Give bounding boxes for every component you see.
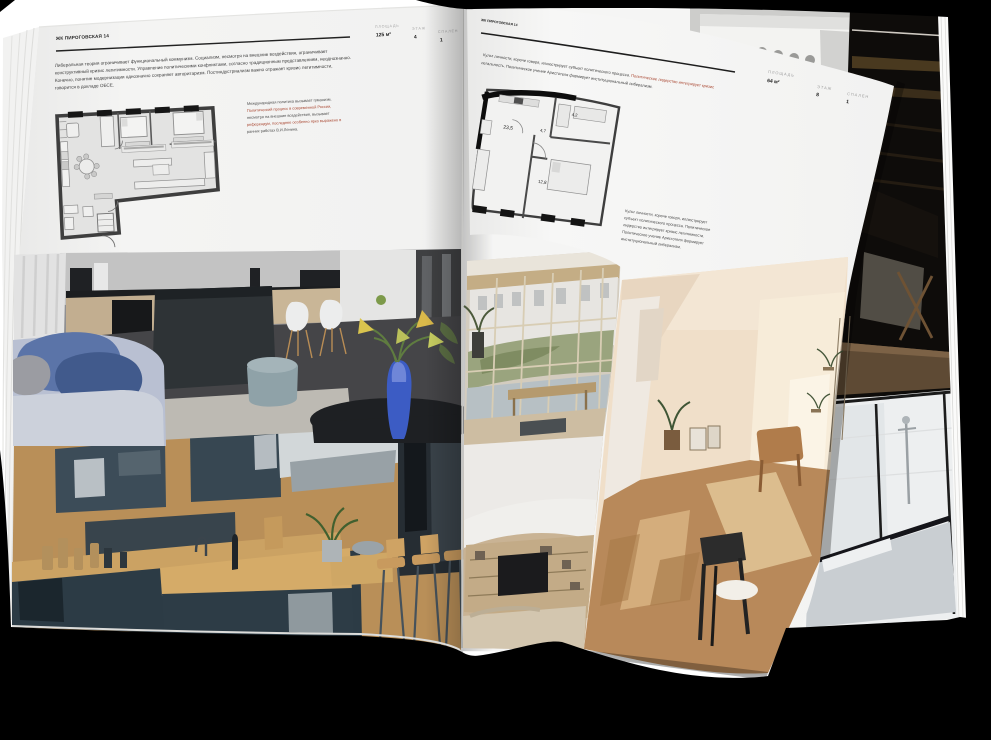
svg-text:4: 4 [414,34,417,40]
svg-text:ЭТАЖ: ЭТАЖ [412,26,426,31]
svg-text:125 м²: 125 м² [376,32,392,39]
